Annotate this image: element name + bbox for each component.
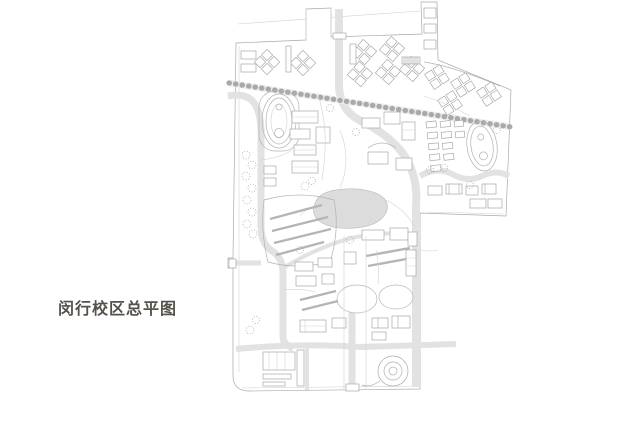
screenshot-canvas: 闵行校区总平图: [0, 0, 640, 425]
central-lake: [314, 189, 388, 229]
west-gate: [229, 259, 236, 268]
campus-site-plan: [0, 0, 640, 425]
north-gate: [333, 33, 346, 39]
cross-campus-road: [236, 344, 456, 349]
south-gate: [346, 384, 359, 391]
parking-strip: [402, 57, 420, 64]
